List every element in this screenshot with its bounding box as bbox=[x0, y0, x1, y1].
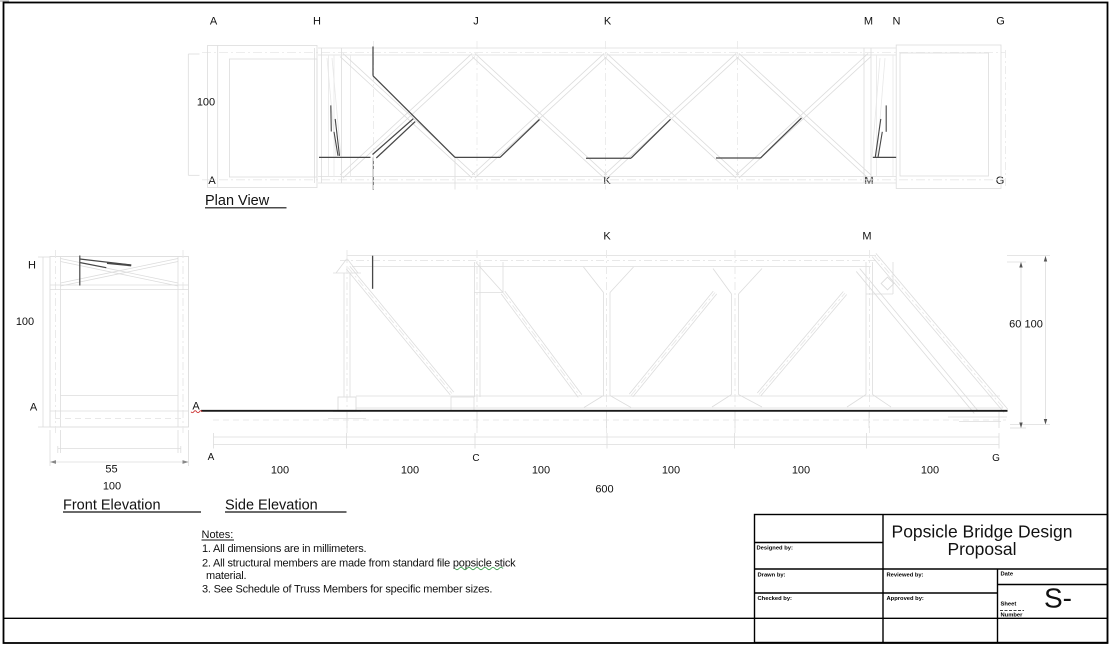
svg-text:K: K bbox=[604, 16, 612, 28]
svg-text:60 100: 60 100 bbox=[1009, 319, 1043, 331]
svg-text:K: K bbox=[603, 231, 611, 243]
svg-text:100: 100 bbox=[197, 97, 215, 109]
svg-text:material.: material. bbox=[206, 570, 247, 582]
svg-text:100: 100 bbox=[532, 465, 550, 477]
svg-text:J: J bbox=[473, 16, 479, 28]
svg-text:Designed by:: Designed by: bbox=[757, 546, 793, 552]
svg-text:600: 600 bbox=[595, 484, 613, 496]
svg-text:C: C bbox=[472, 453, 479, 464]
svg-text:H: H bbox=[313, 16, 321, 28]
svg-text:A: A bbox=[208, 175, 216, 187]
svg-text:3. See Schedule of Truss Membe: 3. See Schedule of Truss Members for spe… bbox=[202, 583, 492, 595]
svg-text:100: 100 bbox=[921, 465, 939, 477]
svg-text:Notes:: Notes: bbox=[202, 529, 234, 541]
svg-text:Date: Date bbox=[1001, 572, 1014, 578]
svg-text:1. All dimensions are in milli: 1. All dimensions are in millimeters. bbox=[202, 543, 367, 555]
svg-text:S-: S- bbox=[1044, 583, 1072, 614]
svg-text:G: G bbox=[996, 175, 1005, 187]
svg-text:Checked by:: Checked by: bbox=[758, 596, 793, 602]
svg-text:A: A bbox=[192, 401, 200, 413]
svg-text:G: G bbox=[996, 16, 1005, 28]
svg-text:Approved by:: Approved by: bbox=[887, 596, 924, 602]
svg-text:Drawn by:: Drawn by: bbox=[758, 573, 786, 579]
svg-text:Reviewed by:: Reviewed by: bbox=[887, 573, 924, 579]
svg-text:N: N bbox=[893, 16, 901, 28]
svg-text:A: A bbox=[30, 402, 38, 414]
svg-text:G: G bbox=[992, 453, 1000, 464]
svg-text:M: M bbox=[862, 231, 871, 243]
svg-text:100: 100 bbox=[16, 316, 34, 328]
svg-text:M: M bbox=[864, 16, 873, 28]
svg-text:100: 100 bbox=[401, 465, 419, 477]
svg-text:Front Elevation: Front Elevation bbox=[63, 498, 161, 514]
svg-text:100: 100 bbox=[103, 481, 121, 493]
svg-text:100: 100 bbox=[662, 465, 680, 477]
svg-text:Proposal: Proposal bbox=[947, 539, 1016, 559]
svg-text:H: H bbox=[28, 260, 36, 272]
svg-text:Sheet: Sheet bbox=[1001, 602, 1017, 608]
svg-text:100: 100 bbox=[271, 465, 289, 477]
svg-text:A: A bbox=[210, 16, 218, 28]
svg-text:A: A bbox=[208, 452, 215, 463]
svg-text:55: 55 bbox=[105, 464, 117, 476]
svg-text:Plan View: Plan View bbox=[205, 193, 270, 209]
svg-text:Side Elevation: Side Elevation bbox=[225, 498, 318, 514]
svg-text:100: 100 bbox=[792, 465, 810, 477]
